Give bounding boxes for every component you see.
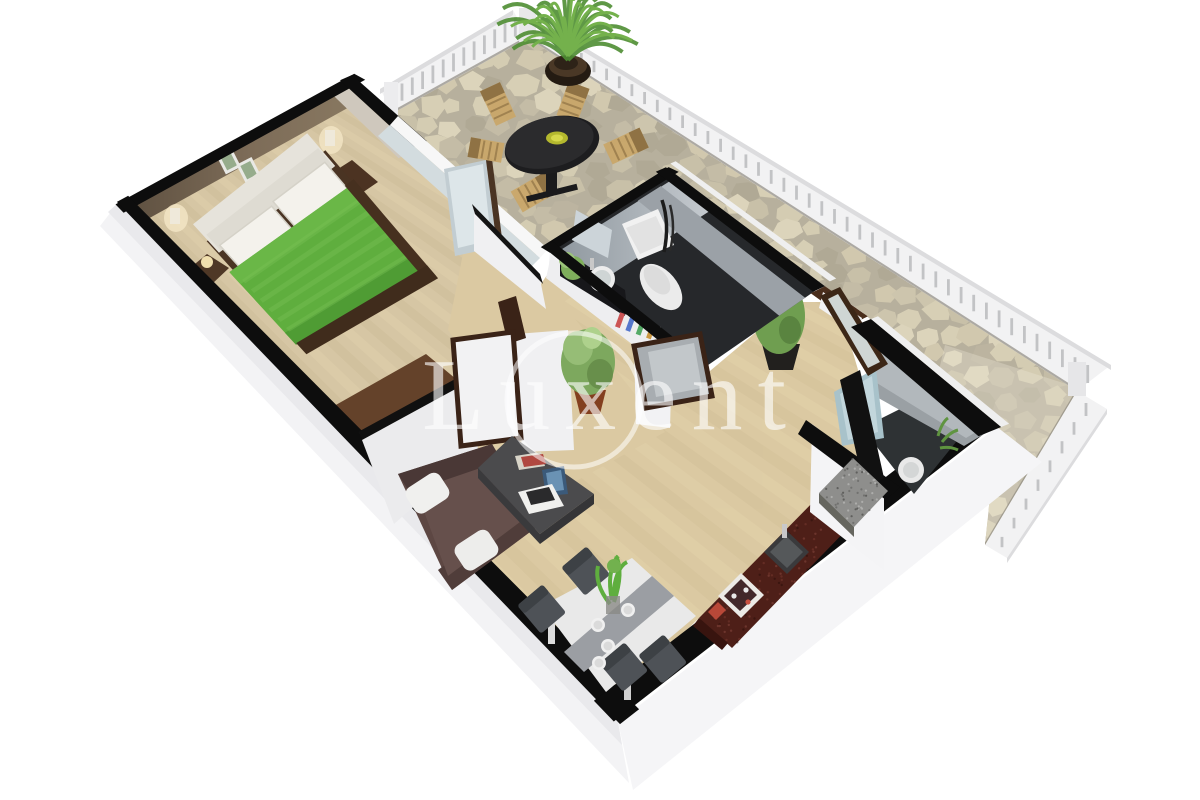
svg-text:Luxent: Luxent bbox=[422, 339, 801, 452]
